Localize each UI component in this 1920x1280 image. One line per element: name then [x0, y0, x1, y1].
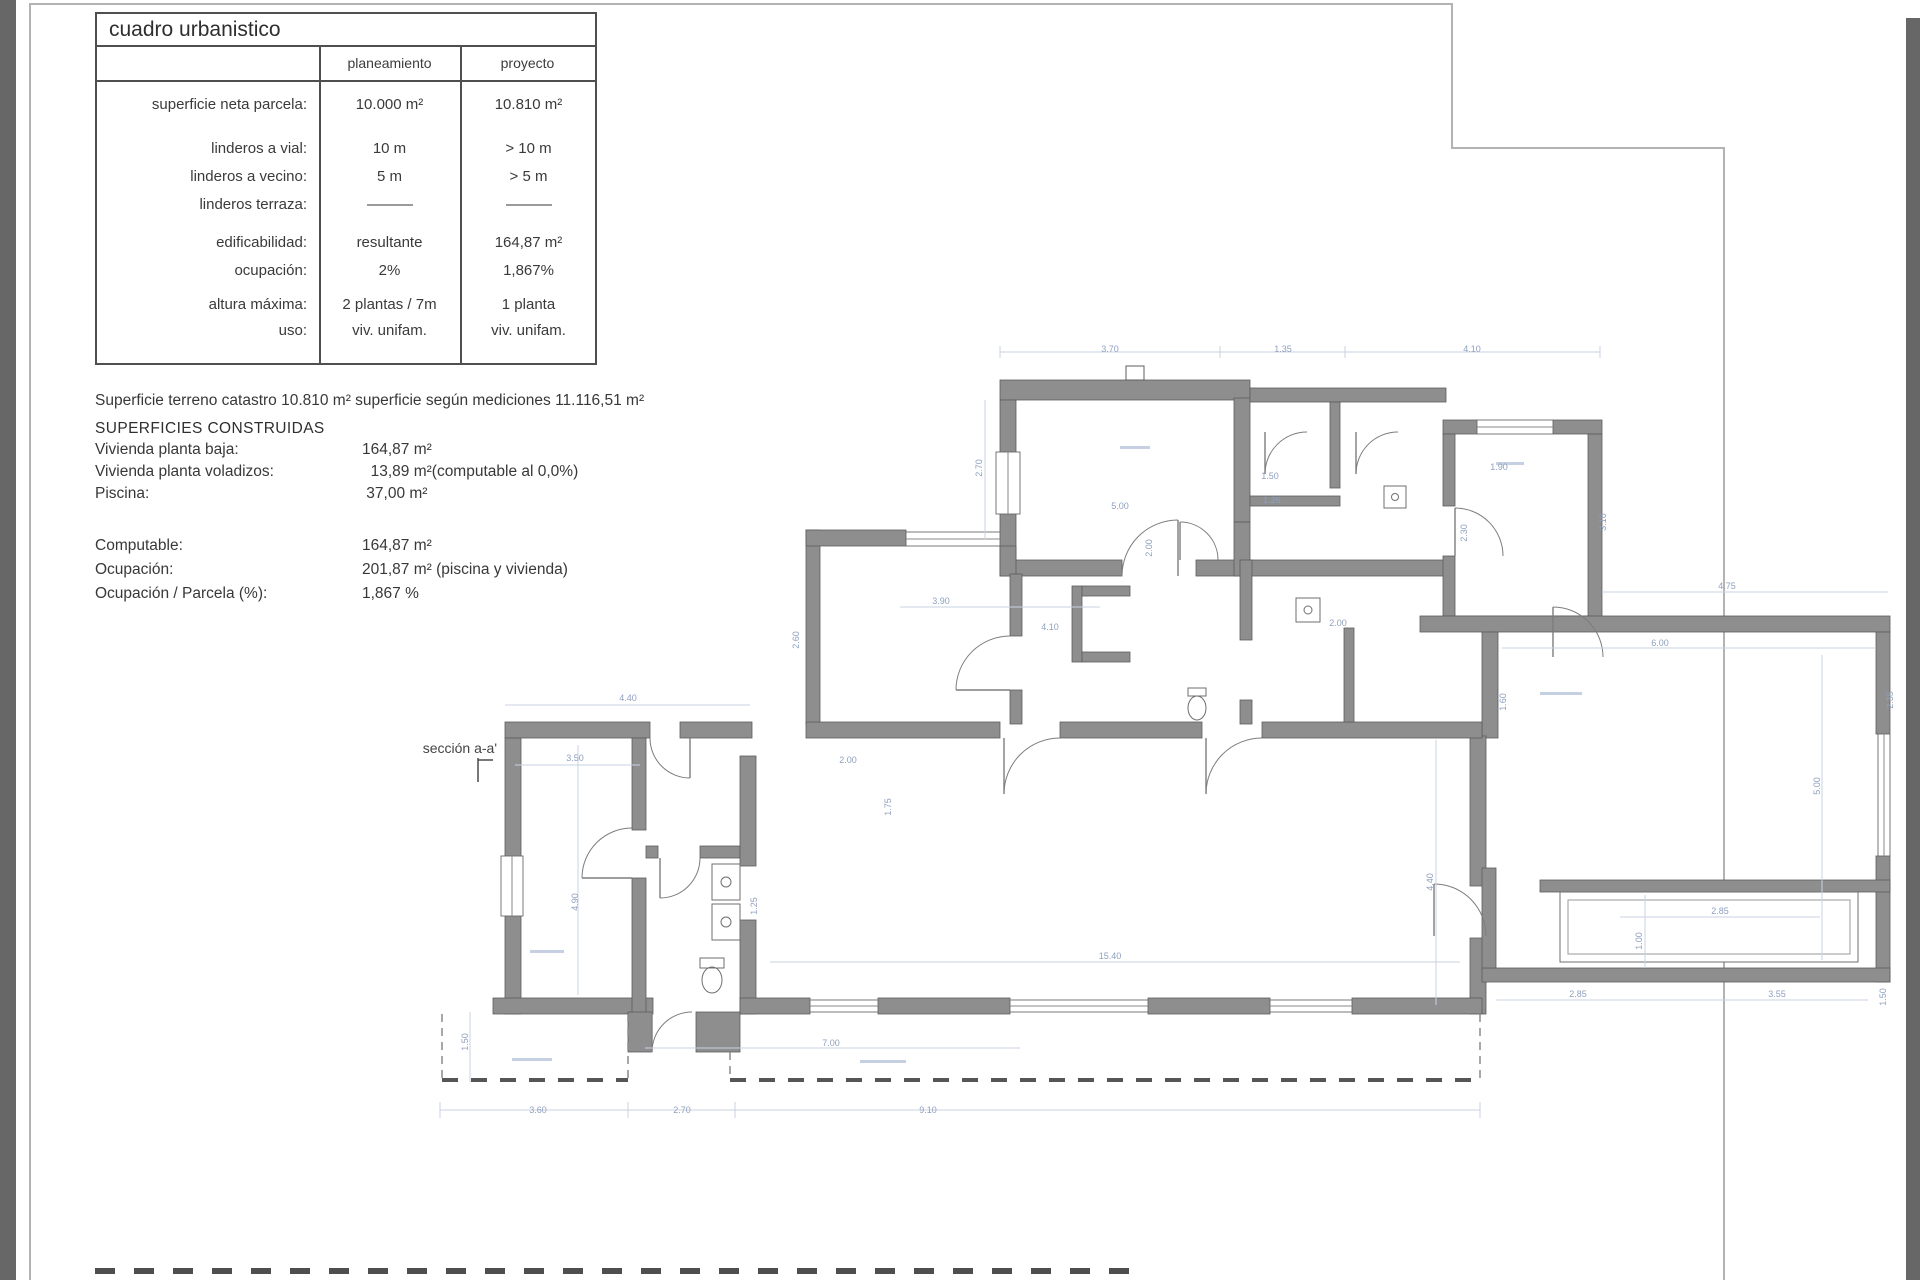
table-header-row: planeamiento proyecto: [97, 47, 595, 82]
planeamiento-value: [321, 196, 458, 213]
pool: [1560, 892, 1858, 962]
dimension-label: 4.40: [1425, 873, 1435, 891]
dimension-label: 3.70: [1101, 344, 1119, 354]
row-label: linderos a vecino:: [97, 168, 307, 185]
dimension-label: 1.35: [1274, 344, 1292, 354]
dimension-label: 2.00: [839, 755, 857, 765]
dimension-label: 1.60: [1498, 693, 1508, 711]
dimension-label: 1.75: [883, 798, 893, 816]
roof-notch: [1126, 366, 1144, 380]
urban-planning-table: cuadro urbanistico planeamiento proyecto…: [95, 12, 597, 365]
dimension-label: 1.50: [460, 1033, 470, 1051]
planeamiento-value: 10 m: [321, 140, 458, 157]
dimension-label: 4.75: [1718, 581, 1736, 591]
superficies-heading: SUPERFICIES CONSTRUIDAS: [95, 420, 325, 438]
dimension-label: 2.35: [1885, 691, 1895, 709]
dimension-label: 6.00: [1651, 638, 1669, 648]
dimension-label: 2.70: [974, 459, 984, 477]
table-title: cuadro urbanistico: [97, 14, 595, 47]
dimension-label: 3.55: [1768, 989, 1786, 999]
dimension-label: 2.85: [1569, 989, 1587, 999]
row-label: Vivienda planta voladizos:: [95, 463, 274, 480]
row-label: altura máxima:: [97, 296, 307, 313]
dimension-label: 15.40: [1099, 951, 1122, 961]
dimension-label: 1.26: [1263, 495, 1281, 505]
table-row: edificabilidad:resultante164,87 m²: [97, 234, 595, 256]
scan-edge-right: [1906, 18, 1920, 1280]
planeamiento-value: 2 plantas / 7m: [321, 296, 458, 313]
row-label: Computable:: [95, 537, 183, 554]
drawing-sheet: 3.701.354.102.705.002.003.904.102.601.50…: [0, 0, 1920, 1280]
column-header-planeamiento: planeamiento: [319, 55, 460, 71]
dimension-label: 1.50: [1878, 988, 1888, 1006]
proyecto-value: 1,867%: [462, 262, 595, 279]
table-row: ocupación:2%1,867%: [97, 262, 595, 284]
table-row: uso:viv. unifam.viv. unifam.: [97, 322, 595, 344]
dimension-label: 4.40: [619, 693, 637, 703]
dimension-label: 3.50: [566, 753, 584, 763]
superficie-row: Piscina: 37,00 m²: [95, 485, 149, 503]
dimension-label: 3.90: [932, 596, 950, 606]
superficie-row: Vivienda planta voladizos: 13,89 m²(comp…: [95, 463, 274, 481]
total-row: Computable:164,87 m²: [95, 537, 183, 555]
door-arcs: [582, 432, 1603, 1052]
dimension-label: 3.10: [1598, 513, 1608, 531]
dimension-label: 2.00: [1329, 618, 1347, 628]
proyecto-value: > 10 m: [462, 140, 595, 157]
row-label: Vivienda planta baja:: [95, 441, 239, 458]
table-row: altura máxima:2 plantas / 7m1 planta: [97, 296, 595, 318]
dimension-label: 3.60: [529, 1105, 547, 1115]
dimension-label: 1.25: [749, 897, 759, 915]
row-value: 13,89 m²(computable al 0,0%): [362, 463, 578, 481]
row-label: ocupación:: [97, 262, 307, 279]
planeamiento-value: viv. unifam.: [321, 322, 458, 339]
dimension-label: 5.00: [1812, 777, 1822, 795]
table-body: superficie neta parcela:10.000 m²10.810 …: [97, 80, 595, 344]
dimension-label: 2.00: [1144, 539, 1154, 557]
row-label: linderos terraza:: [97, 196, 307, 213]
row-value: 1,867 %: [362, 585, 419, 603]
row-label: Piscina:: [95, 485, 149, 502]
planeamiento-value: 5 m: [321, 168, 458, 185]
dimension-label: 4.10: [1463, 344, 1481, 354]
table-row: linderos a vecino:5 m> 5 m: [97, 168, 595, 190]
proyecto-value: > 5 m: [462, 168, 595, 185]
proyecto-value: [462, 196, 595, 213]
total-row: Ocupación:201,87 m² (piscina y vivienda): [95, 561, 173, 579]
planeamiento-value: 10.000 m²: [321, 96, 458, 113]
scan-edge-left: [0, 0, 16, 1280]
row-value: 164,87 m²: [362, 537, 432, 555]
row-label: Ocupación:: [95, 561, 173, 578]
row-label: Ocupación / Parcela (%):: [95, 585, 267, 602]
dimension-label: 2.60: [791, 631, 801, 649]
dimension-label: 4.90: [570, 893, 580, 911]
row-label: uso:: [97, 322, 307, 339]
row-value: 201,87 m² (piscina y vivienda): [362, 561, 568, 579]
row-label: superficie neta parcela:: [97, 96, 307, 113]
dimension-label: 7.00: [822, 1038, 840, 1048]
table-row: linderos a vial:10 m> 10 m: [97, 140, 595, 162]
superficie-row: Vivienda planta baja:164,87 m²: [95, 441, 239, 459]
row-value: 164,87 m²: [362, 441, 432, 459]
dimension-label: 1.00: [1634, 932, 1644, 950]
pergola-dashed-outline: [442, 1014, 1480, 1080]
section-marker: [478, 758, 493, 782]
proyecto-value: viv. unifam.: [462, 322, 595, 339]
column-header-proyecto: proyecto: [460, 55, 595, 71]
room-label-smudges: [512, 446, 1582, 1063]
dimension-label: 5.00: [1111, 501, 1129, 511]
planeamiento-value: 2%: [321, 262, 458, 279]
proyecto-value: 10.810 m²: [462, 96, 595, 113]
row-value: 37,00 m²: [362, 485, 427, 503]
catastro-note: Superficie terreno catastro 10.810 m² su…: [95, 392, 644, 410]
row-label: linderos a vial:: [97, 140, 307, 157]
row-label: edificabilidad:: [97, 234, 307, 251]
dimension-label: 2.30: [1459, 524, 1469, 542]
dimension-label: 4.10: [1041, 622, 1059, 632]
proyecto-value: 164,87 m²: [462, 234, 595, 251]
table-row: superficie neta parcela:10.000 m²10.810 …: [97, 96, 595, 118]
section-label: sección a-a': [385, 740, 497, 756]
table-row: linderos terraza:: [97, 196, 595, 218]
proyecto-value: 1 planta: [462, 296, 595, 313]
total-row: Ocupación / Parcela (%):1,867 %: [95, 585, 267, 603]
dimension-label: 1.90: [1490, 462, 1508, 472]
dimension-label: 9.10: [919, 1105, 937, 1115]
dimension-label: 1.50: [1261, 471, 1279, 481]
dimension-label: 2.85: [1711, 906, 1729, 916]
dimension-label: 2.70: [673, 1105, 691, 1115]
planeamiento-value: resultante: [321, 234, 458, 251]
